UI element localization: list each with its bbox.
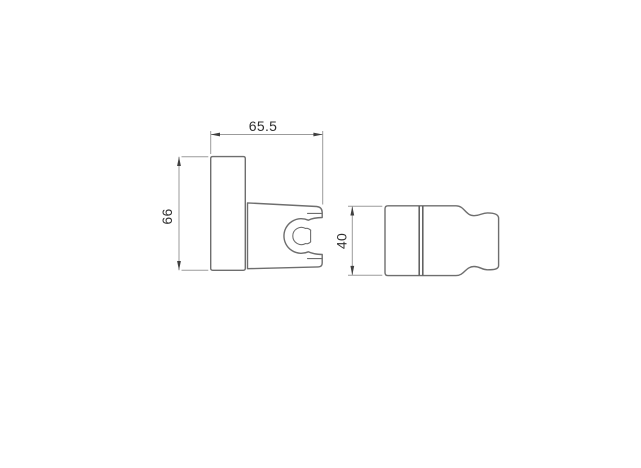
dimension-width-arrow-right <box>313 133 322 137</box>
dimension-height-arrow-top <box>177 157 181 166</box>
technical-drawing-canvas: 65.5 66 40 <box>0 0 641 468</box>
dimension-depth-arrow-bottom <box>350 266 354 275</box>
side-view <box>385 206 499 276</box>
clamp-inner-c-outline <box>293 227 311 244</box>
dimension-depth: 40 <box>334 206 383 275</box>
dimension-depth-label: 40 <box>334 233 350 249</box>
dimension-depth-arrow-top <box>350 206 354 215</box>
front-view <box>211 157 323 271</box>
dimension-height: 66 <box>159 157 208 271</box>
wall-plate-front-outline <box>211 157 246 271</box>
dimension-width: 65.5 <box>211 118 323 205</box>
drawing-page: 65.5 66 40 <box>0 0 641 468</box>
dimension-width-label: 65.5 <box>249 118 277 134</box>
side-profile-outline <box>385 206 499 276</box>
dimension-width-arrow-left <box>211 133 220 137</box>
dimension-height-arrow-bottom <box>177 261 181 270</box>
dimension-height-label: 66 <box>159 208 175 224</box>
